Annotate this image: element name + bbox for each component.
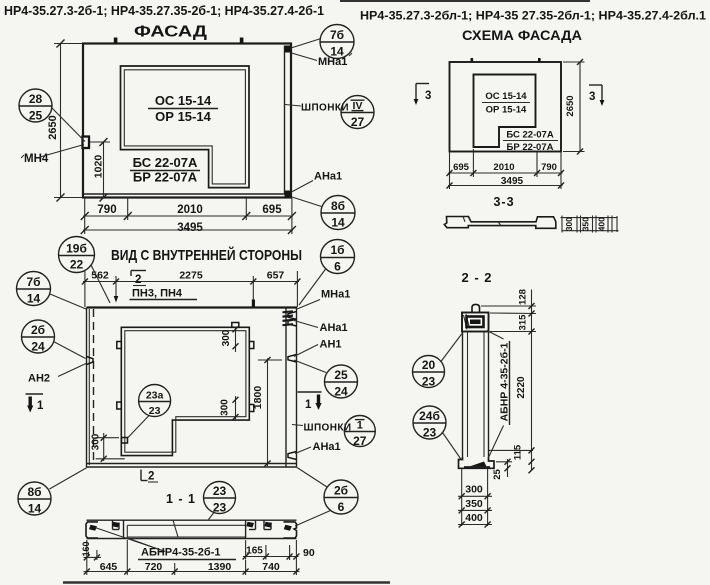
svg-text:350: 350 [581, 217, 591, 231]
svg-text:1б: 1б [330, 243, 344, 257]
svg-text:300: 300 [564, 217, 574, 231]
svg-text:350: 350 [465, 498, 483, 510]
svg-text:160: 160 [81, 541, 91, 556]
svg-text:24: 24 [334, 385, 348, 399]
svg-text:3: 3 [589, 91, 595, 103]
svg-text:АНа1: АНа1 [313, 441, 341, 453]
svg-text:3495: 3495 [177, 222, 203, 234]
svg-text:ОС 15-14: ОС 15-14 [155, 93, 212, 108]
svg-text:790: 790 [541, 162, 557, 173]
svg-text:ОС 15-14: ОС 15-14 [485, 91, 527, 102]
svg-text:27: 27 [353, 434, 367, 448]
svg-text:НР4-35.27.3-2б-1; НР4-35.27.35: НР4-35.27.3-2б-1; НР4-35.27.35-2б-1; НР4… [4, 4, 324, 18]
svg-text:БС 22-07А: БС 22-07А [506, 130, 554, 141]
svg-text:НР4-35.27.3-2бл-1; НР4-35 27.3: НР4-35.27.3-2бл-1; НР4-35 27.35-2бл-1; Н… [360, 9, 706, 23]
svg-text:23: 23 [423, 426, 437, 440]
svg-text:14: 14 [27, 292, 41, 306]
svg-text:315: 315 [518, 314, 529, 331]
svg-text:740: 740 [262, 561, 280, 573]
svg-text:695: 695 [453, 162, 470, 173]
svg-text:АН2: АН2 [28, 373, 50, 385]
svg-text:7б: 7б [330, 28, 344, 42]
svg-text:6: 6 [334, 260, 341, 274]
svg-text:2650: 2650 [565, 95, 576, 116]
svg-text:695: 695 [262, 204, 282, 216]
svg-text:АН1: АН1 [320, 339, 342, 351]
svg-text:БР 22-07А: БР 22-07А [507, 142, 554, 153]
svg-text:790: 790 [97, 204, 116, 216]
svg-text:23а: 23а [146, 390, 164, 402]
svg-text:24: 24 [31, 340, 45, 354]
svg-text:2б: 2б [31, 323, 45, 337]
svg-text:720: 720 [145, 561, 163, 573]
svg-text:128: 128 [518, 289, 529, 305]
svg-text:400: 400 [597, 217, 607, 231]
svg-text:2б: 2б [334, 484, 348, 498]
svg-text:14: 14 [28, 502, 42, 516]
svg-text:300: 300 [221, 329, 232, 346]
svg-text:2220: 2220 [516, 376, 527, 399]
svg-text:СХЕМА ФАСАДА: СХЕМА ФАСАДА [462, 27, 582, 43]
svg-text:300: 300 [465, 484, 483, 496]
svg-text:1800: 1800 [252, 386, 264, 410]
svg-text:1 - 1: 1 - 1 [166, 492, 196, 506]
svg-text:562: 562 [91, 270, 109, 282]
svg-text:8б: 8б [331, 199, 345, 213]
svg-text:23: 23 [149, 405, 161, 417]
svg-text:657: 657 [267, 270, 285, 282]
svg-text:АНа1: АНа1 [314, 171, 342, 183]
svg-text:АНа1: АНа1 [320, 322, 348, 334]
svg-text:6: 6 [338, 500, 345, 514]
svg-text:27: 27 [351, 115, 365, 129]
svg-text:23: 23 [213, 484, 227, 498]
svg-text:2: 2 [148, 471, 154, 483]
svg-text:25: 25 [492, 469, 503, 480]
svg-text:115: 115 [513, 444, 524, 460]
svg-text:МНа1: МНа1 [321, 289, 350, 301]
svg-text:645: 645 [100, 561, 118, 573]
svg-text:ПН3, ПН4: ПН3, ПН4 [132, 288, 183, 300]
svg-text:3495: 3495 [501, 176, 524, 187]
svg-text:МНа1: МНа1 [318, 56, 347, 68]
svg-text:22: 22 [70, 258, 84, 272]
svg-text:1390: 1390 [208, 561, 232, 573]
svg-text:2010: 2010 [177, 204, 203, 216]
svg-text:3: 3 [425, 90, 431, 102]
svg-text:400: 400 [465, 512, 483, 524]
svg-text:АБНР 4-35-2б-1: АБНР 4-35-2б-1 [499, 342, 511, 421]
svg-text:165: 165 [246, 546, 263, 557]
svg-text:БС 22-07А: БС 22-07А [133, 155, 198, 170]
svg-text:1: 1 [37, 400, 44, 412]
svg-text:8б: 8б [27, 485, 41, 499]
svg-text:БР 22-07А: БР 22-07А [133, 170, 198, 185]
svg-text:14: 14 [331, 216, 345, 230]
svg-text:ОР 15-14: ОР 15-14 [486, 105, 527, 116]
svg-text:19б: 19б [66, 242, 87, 256]
svg-text:АБНР4-35-2б-1: АБНР4-35-2б-1 [141, 547, 221, 559]
svg-text:2 - 2: 2 - 2 [461, 270, 492, 285]
svg-text:ВИД С ВНУТРЕННЕЙ СТОРОНЫ: ВИД С ВНУТРЕННЕЙ СТОРОНЫ [111, 246, 302, 264]
svg-text:ФАСАД: ФАСАД [134, 24, 208, 41]
svg-text:25: 25 [334, 368, 348, 382]
svg-text:2275: 2275 [179, 270, 203, 282]
svg-text:2: 2 [135, 274, 141, 286]
svg-text:25: 25 [29, 109, 43, 123]
svg-text:2010: 2010 [493, 162, 514, 173]
svg-text:300: 300 [220, 399, 231, 416]
svg-text:3-3: 3-3 [493, 195, 514, 209]
svg-text:23: 23 [422, 375, 436, 389]
svg-text:90: 90 [303, 547, 315, 559]
svg-text:ОР 15-14: ОР 15-14 [155, 109, 211, 124]
svg-text:24б: 24б [419, 409, 440, 423]
svg-text:7б: 7б [26, 275, 40, 289]
svg-text:300: 300 [91, 433, 102, 450]
svg-text:20: 20 [422, 358, 436, 372]
svg-text:23: 23 [213, 501, 227, 515]
svg-text:МН4: МН4 [24, 153, 49, 165]
svg-text:2650: 2650 [47, 115, 59, 139]
svg-text:28: 28 [29, 92, 43, 106]
svg-text:1: 1 [357, 420, 363, 432]
svg-text:1: 1 [305, 399, 312, 411]
svg-text:1020: 1020 [93, 155, 105, 179]
